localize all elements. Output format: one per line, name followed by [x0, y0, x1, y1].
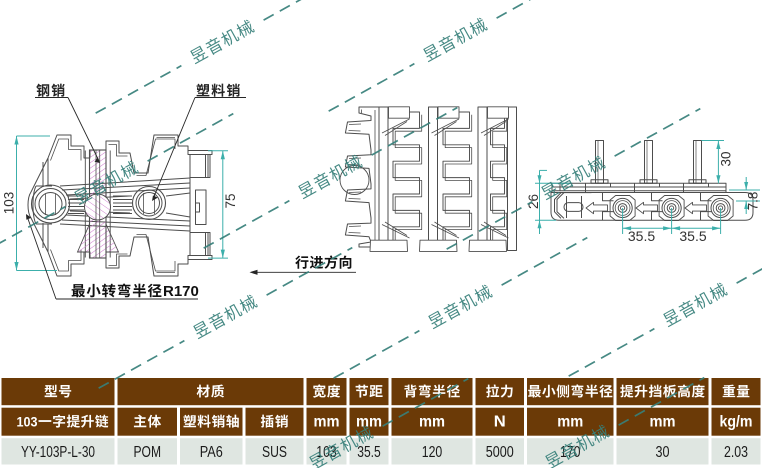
svg-text:35.5: 35.5	[357, 444, 381, 461]
svg-text:kg/m: kg/m	[720, 413, 753, 430]
svg-text:120: 120	[422, 444, 443, 461]
svg-text:YY-103P-L-30: YY-103P-L-30	[21, 444, 95, 461]
svg-text:2.03: 2.03	[724, 444, 748, 461]
svg-text:POM: POM	[134, 444, 162, 461]
svg-text:N: N	[494, 413, 506, 430]
svg-text:30: 30	[656, 444, 670, 461]
svg-text:mm: mm	[419, 413, 445, 430]
svg-text:26: 26	[526, 194, 541, 209]
svg-text:mm: mm	[557, 413, 583, 430]
svg-text:35.5: 35.5	[679, 228, 706, 244]
svg-text:5000: 5000	[486, 444, 514, 461]
svg-text:mm: mm	[314, 413, 340, 430]
svg-text:7.8: 7.8	[745, 192, 760, 211]
svg-text:30: 30	[719, 151, 734, 166]
svg-text:R170: R170	[163, 283, 199, 300]
svg-text:103: 103	[2, 192, 17, 215]
svg-text:PA6: PA6	[200, 444, 223, 461]
svg-text:SUS: SUS	[262, 444, 287, 461]
svg-text:75: 75	[223, 193, 238, 208]
svg-text:103: 103	[17, 413, 38, 429]
svg-text:35.5: 35.5	[628, 228, 655, 244]
svg-text:mm: mm	[650, 413, 676, 430]
svg-text:mm: mm	[356, 413, 382, 430]
